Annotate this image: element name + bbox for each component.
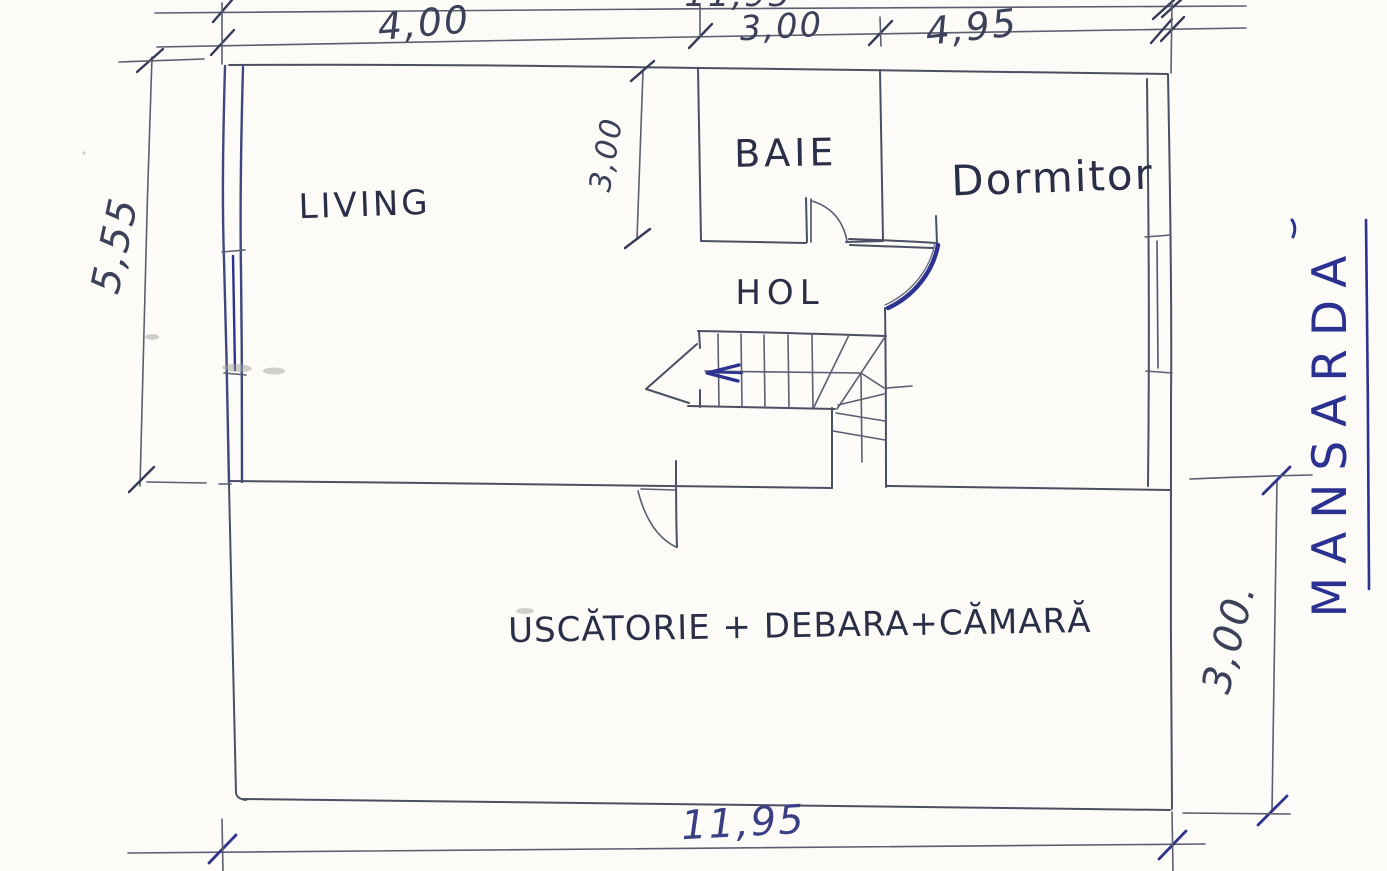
floor-title-group: MANSARDA — [1292, 220, 1369, 617]
dimension-right: 3,00. — [1183, 467, 1312, 825]
door-frame-stub — [936, 216, 937, 244]
dim-label-baie-depth: 3,00 — [583, 114, 630, 194]
floor-title-underline — [1366, 220, 1369, 589]
baie-door — [806, 198, 847, 242]
door-swing-arc — [638, 491, 676, 547]
extension-line — [1183, 813, 1290, 814]
room-label-living: LIVING — [298, 183, 431, 228]
dim-label-top-left: 4,00 — [376, 0, 472, 49]
window-glass-line — [233, 256, 235, 370]
stair-treads — [718, 334, 885, 462]
room-label-hol: HOL — [735, 273, 824, 313]
winder-tread — [833, 431, 885, 440]
stair-top-edge — [698, 331, 886, 336]
baie-bottom-wall-right — [846, 241, 883, 242]
winder-tread — [814, 335, 849, 407]
floor-plan-drawing: 11,95 4,00 3,00 4,95 5,55 3,00 3, — [0, 0, 1387, 871]
winder-divider — [861, 375, 862, 462]
staircase — [646, 331, 912, 462]
extension-line — [222, 819, 223, 871]
dim-label-top-mid: 3,00 — [739, 5, 825, 49]
service-room-door — [638, 461, 677, 547]
window-glass-line — [1157, 241, 1158, 368]
winder-tread — [836, 413, 885, 421]
interior-walls — [230, 68, 1170, 490]
dim-label-top-right: 4,95 — [923, 0, 1020, 53]
room-label-baie: BAIE — [734, 130, 838, 176]
floor-title: MANSARDA — [1303, 243, 1358, 618]
extension-line — [147, 482, 231, 484]
baie-bottom-wall-left — [701, 241, 806, 243]
dormitor-bottom-wall-2 — [850, 245, 933, 248]
hol-dormitor-wall — [885, 308, 886, 487]
dimension-baie-depth: 3,00 — [583, 61, 654, 248]
extension-line — [119, 59, 204, 62]
floor-plan-sheet: 11,95 4,00 3,00 4,95 5,55 3,00 3, — [0, 0, 1387, 871]
room-label-service: USCĂTORIE + DEBARA+CĂMARĂ — [508, 600, 1092, 651]
stair-direction-arrow-icon — [707, 365, 742, 381]
stair-left-edge — [699, 331, 700, 348]
door-leaf — [806, 198, 807, 242]
left-wall-outer — [223, 66, 229, 483]
dimension-left: 5,55 — [83, 49, 231, 492]
middle-wall-left — [230, 481, 832, 488]
door-chord — [641, 489, 676, 490]
left-wall-lower — [229, 484, 246, 800]
dim-label-right: 3,00. — [1194, 578, 1266, 698]
extension-line — [880, 17, 881, 46]
extension-line — [1172, 812, 1173, 871]
extension-line — [1190, 475, 1312, 479]
baie-dormitor-wall — [880, 70, 883, 240]
middle-wall-right — [887, 486, 1170, 490]
dormitor-door — [885, 243, 938, 308]
dim-label-bottom: 11,95 — [680, 797, 807, 849]
door-swing-arc — [812, 201, 847, 241]
stair-walk-line-stub — [887, 386, 912, 388]
right-wall-inner — [1147, 79, 1149, 486]
left-wall-inner — [241, 67, 243, 482]
dim-label-left: 5,55 — [83, 193, 148, 298]
stair-entry-arrow-outline — [646, 344, 697, 403]
window-tick — [1146, 371, 1172, 373]
extension-line — [1171, 0, 1172, 73]
door-leaf — [676, 461, 677, 547]
baie-left-wall — [698, 68, 701, 240]
pen-stroke-mark — [1292, 220, 1295, 237]
room-label-dormitor: Dormitor — [950, 149, 1154, 205]
right-wall-outer — [1168, 75, 1172, 809]
